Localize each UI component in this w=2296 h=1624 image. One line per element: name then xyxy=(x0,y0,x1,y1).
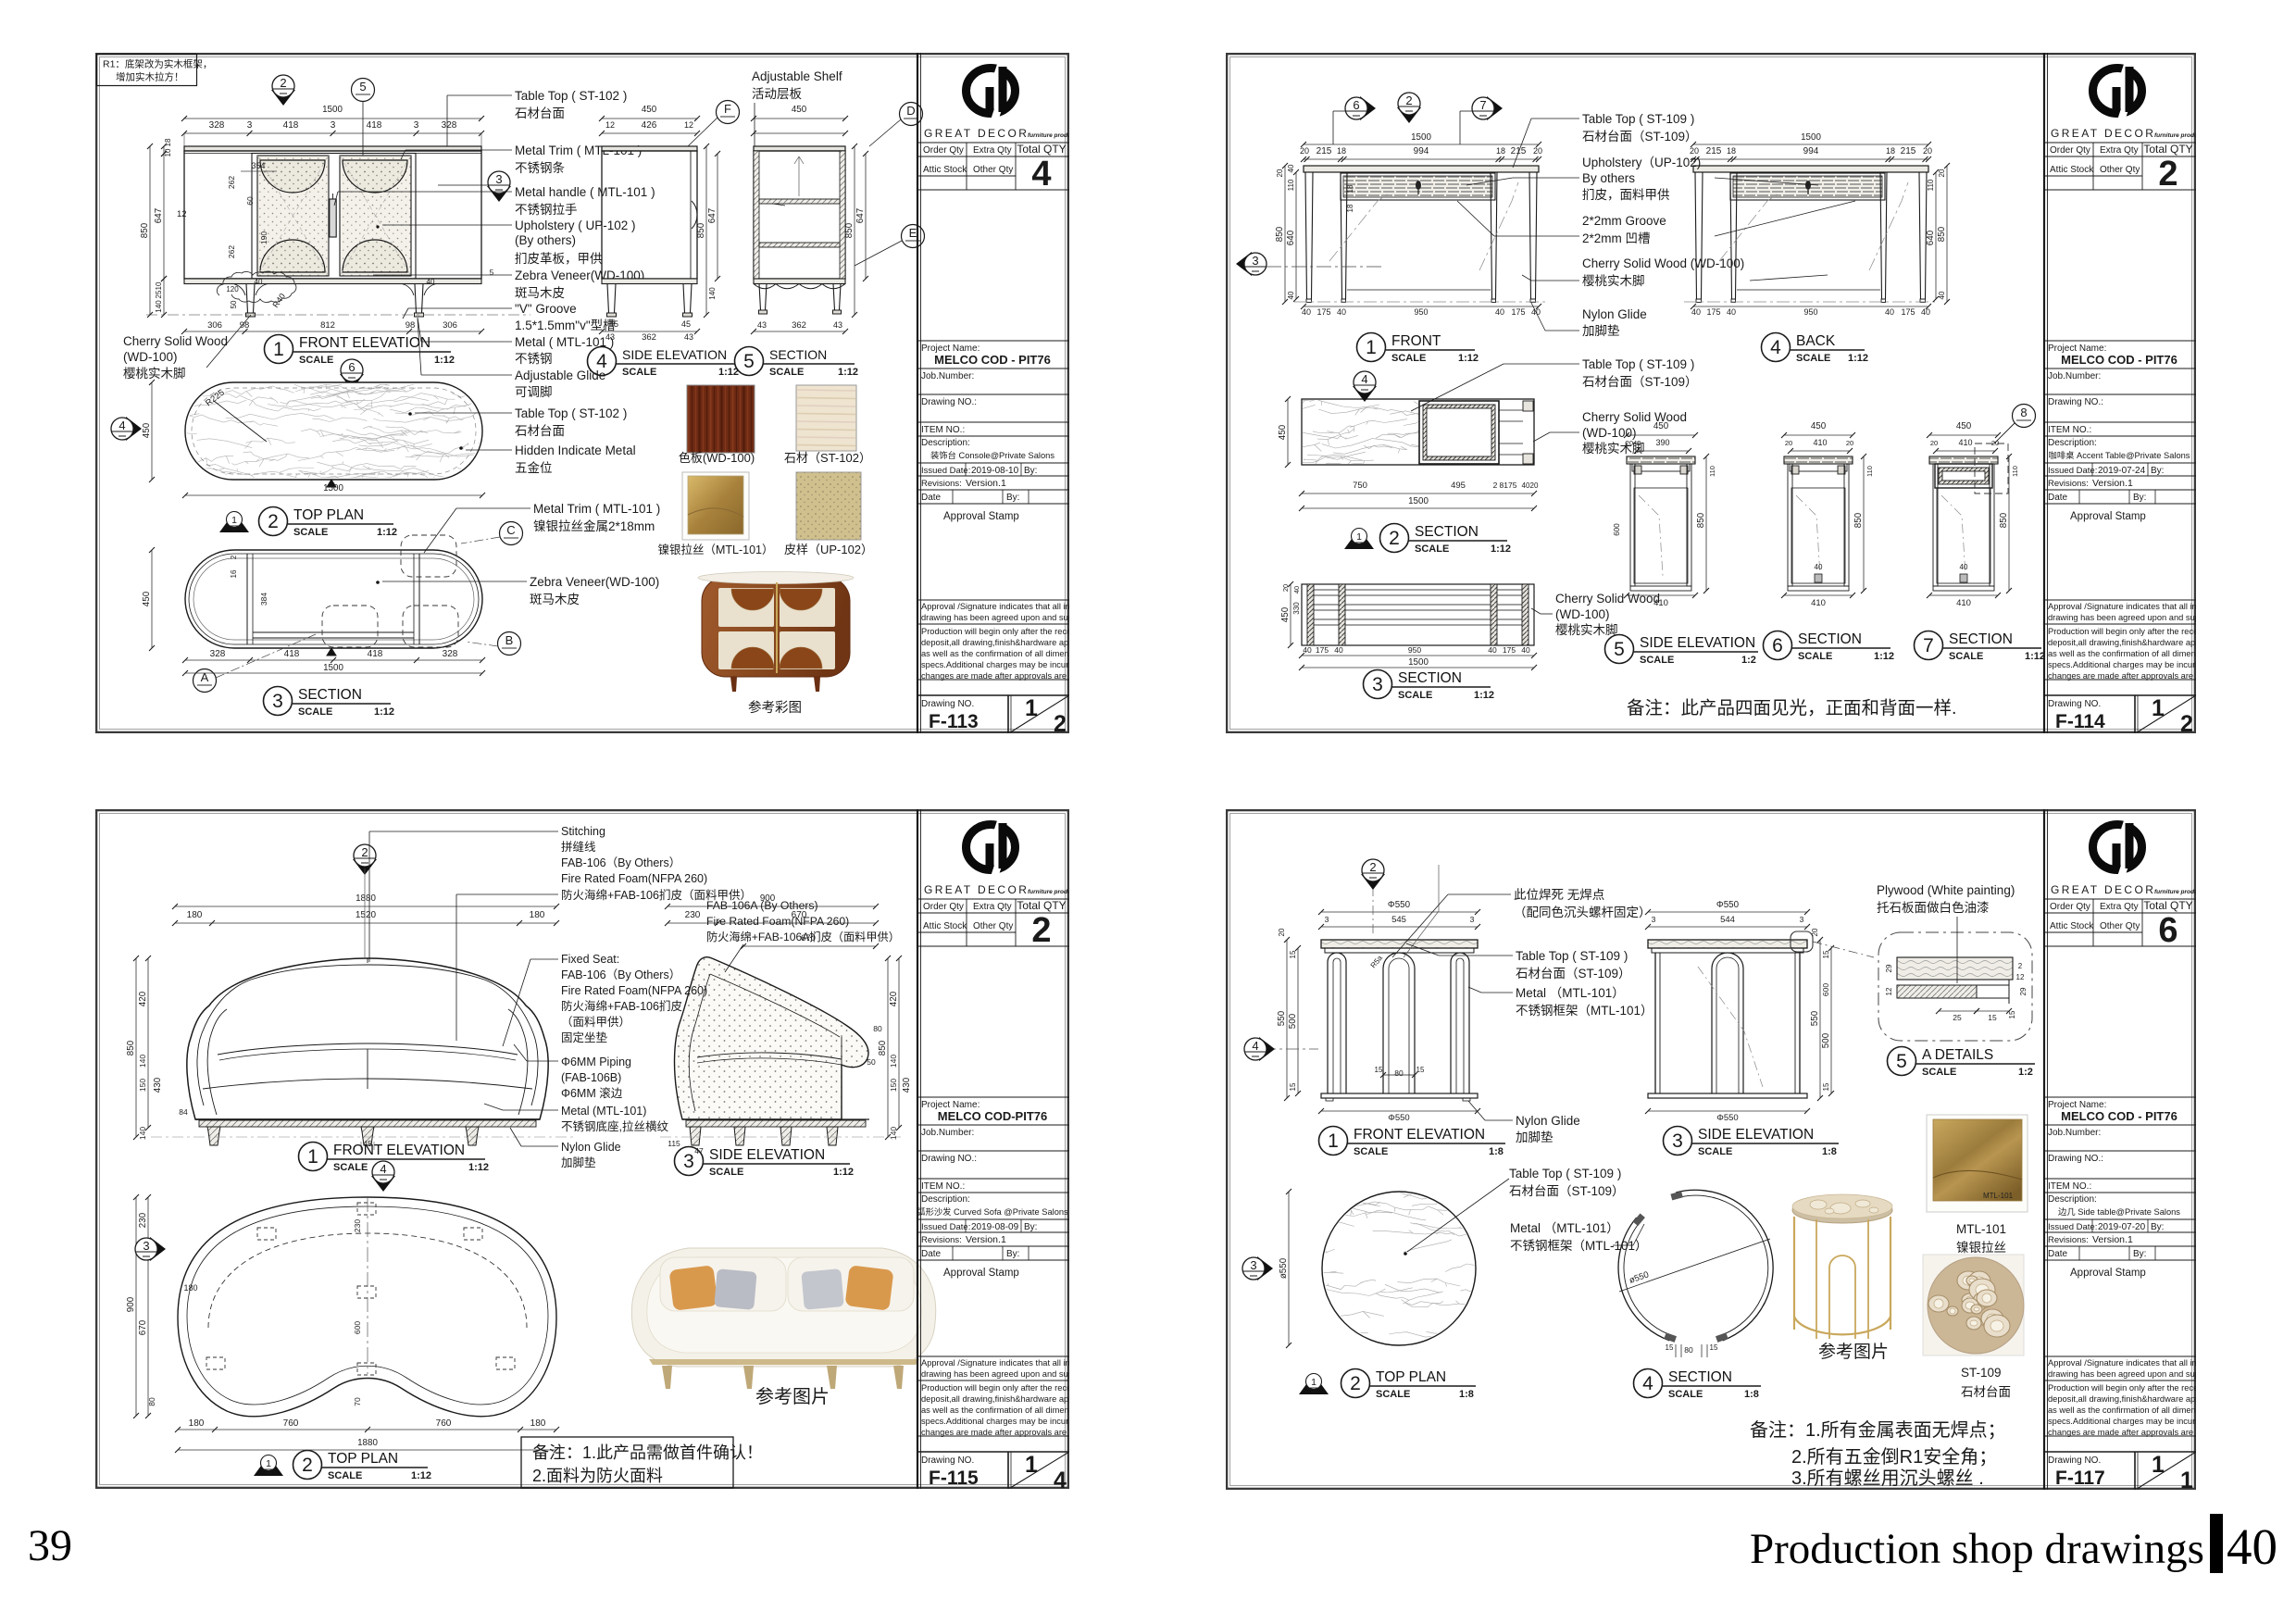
svg-text:樱桃实木脚: 樱桃实木脚 xyxy=(123,366,186,381)
svg-text:140: 140 xyxy=(889,1055,898,1068)
svg-text:110: 110 xyxy=(1865,466,1874,477)
svg-text:12: 12 xyxy=(1885,987,1893,995)
svg-text:1:12: 1:12 xyxy=(1848,353,1868,364)
svg-text:80: 80 xyxy=(873,1024,882,1033)
svg-text:Description:: Description: xyxy=(921,1194,970,1205)
svg-text:1: 1 xyxy=(231,515,237,526)
svg-text:SIDE ELEVATION: SIDE ELEVATION xyxy=(709,1147,825,1163)
svg-text:3: 3 xyxy=(414,120,419,131)
svg-text:By:: By: xyxy=(2151,1222,2164,1232)
svg-text:140: 140 xyxy=(138,1055,147,1068)
svg-text:Attic Stock: Attic Stock xyxy=(923,165,967,175)
svg-text:石材台面: 石材台面 xyxy=(515,424,565,438)
svg-text:1:12: 1:12 xyxy=(838,367,858,378)
svg-text:43: 43 xyxy=(605,332,615,342)
svg-text:110: 110 xyxy=(1287,179,1295,191)
svg-text:12: 12 xyxy=(177,209,187,219)
svg-text:(WD-100): (WD-100) xyxy=(1555,607,1610,621)
svg-text:A DETAILS: A DETAILS xyxy=(1922,1047,1993,1063)
svg-text:SCALE: SCALE xyxy=(622,367,656,378)
svg-text:1:12: 1:12 xyxy=(434,355,455,366)
svg-text:Issued Date:: Issued Date: xyxy=(921,466,970,476)
svg-text:拼缝线: 拼缝线 xyxy=(561,840,596,854)
svg-text:45: 45 xyxy=(681,319,691,329)
svg-text:1:12: 1:12 xyxy=(1474,690,1494,701)
svg-text:180: 180 xyxy=(189,1418,205,1429)
svg-text:SCALE: SCALE xyxy=(1922,1067,1956,1078)
svg-text:175: 175 xyxy=(1316,307,1330,317)
svg-text:328: 328 xyxy=(442,120,457,131)
svg-text:Other Qty: Other Qty xyxy=(973,165,1013,175)
svg-text:418: 418 xyxy=(284,649,300,659)
svg-text:450: 450 xyxy=(1956,421,1972,431)
svg-text:8: 8 xyxy=(2020,406,2027,419)
svg-text:3: 3 xyxy=(1470,915,1475,924)
svg-text:140: 140 xyxy=(708,287,717,300)
svg-text:15: 15 xyxy=(1375,1066,1383,1074)
svg-text:40: 40 xyxy=(1303,645,1312,655)
svg-text:弧形沙发 Curved Sofa @Private Salo: 弧形沙发 Curved Sofa @Private Salons xyxy=(917,1206,1068,1217)
svg-text:Fixed Seat:: Fixed Seat: xyxy=(561,953,619,966)
svg-text:175: 175 xyxy=(1511,307,1525,317)
svg-text:850: 850 xyxy=(140,222,150,238)
svg-text:FRONT ELEVATION: FRONT ELEVATION xyxy=(299,335,430,351)
svg-text:1:12: 1:12 xyxy=(468,1162,489,1173)
svg-text:SCALE: SCALE xyxy=(709,1167,743,1178)
svg-text:Issued Date:: Issued Date: xyxy=(2048,1222,2097,1232)
svg-text:不锈钢: 不锈钢 xyxy=(515,352,553,366)
svg-text:40: 40 xyxy=(1302,307,1311,317)
svg-text:Drawing NO.: Drawing NO. xyxy=(921,1455,974,1466)
svg-text:40: 40 xyxy=(1960,563,1968,571)
svg-text:Approval Stamp: Approval Stamp xyxy=(2070,1268,2146,1279)
svg-text:450: 450 xyxy=(1278,424,1288,440)
svg-text:SCALE: SCALE xyxy=(769,367,804,378)
svg-text:镍银拉丝金属2*18mm: 镍银拉丝金属2*18mm xyxy=(533,519,655,533)
svg-text:SCALE: SCALE xyxy=(299,355,333,366)
svg-text:不锈钢条: 不锈钢条 xyxy=(515,160,565,175)
svg-text:SIDE ELEVATION: SIDE ELEVATION xyxy=(1698,1127,1814,1143)
svg-text:Drawing NO.:: Drawing NO.: xyxy=(921,1154,977,1164)
svg-text:托石板面做白色油漆: 托石板面做白色油漆 xyxy=(1877,900,1990,915)
svg-text:SCALE: SCALE xyxy=(1640,655,1674,666)
svg-text:MTL-101: MTL-101 xyxy=(1983,1192,2014,1200)
svg-text:Approval Stamp: Approval Stamp xyxy=(943,1268,1019,1279)
svg-text:（面料甲供）: （面料甲供） xyxy=(561,1016,630,1029)
svg-text:Job.Number:: Job.Number: xyxy=(921,1128,974,1138)
svg-text:850: 850 xyxy=(878,1040,888,1056)
svg-text:Production will begin only aft: Production will begin only after the rec… xyxy=(921,1383,1069,1393)
svg-text:Nylon Glide: Nylon Glide xyxy=(1582,307,1647,321)
svg-text:ITEM NO.:: ITEM NO.: xyxy=(921,1181,965,1192)
svg-text:600: 600 xyxy=(1613,523,1621,536)
svg-text:5: 5 xyxy=(743,351,755,372)
svg-text:Other Qty: Other Qty xyxy=(2100,165,2140,175)
svg-text:Cherry Solid Wood (WD-100): Cherry Solid Wood (WD-100) xyxy=(1582,256,1744,270)
svg-text:drawing has been agreed upon a: drawing has been agreed upon and superse… xyxy=(2048,613,2196,622)
svg-text:1880: 1880 xyxy=(357,1438,378,1448)
svg-text:SCALE: SCALE xyxy=(298,706,332,718)
svg-text:Version.1: Version.1 xyxy=(2092,1234,2133,1245)
svg-text:备注：1.此产品需做首件确认！: 备注：1.此产品需做首件确认！ xyxy=(532,1443,763,1462)
svg-text:40: 40 xyxy=(1495,307,1504,317)
svg-text:15: 15 xyxy=(2008,1010,2016,1018)
svg-text:3: 3 xyxy=(331,120,336,131)
svg-text:18: 18 xyxy=(1496,146,1505,156)
svg-text:加脚垫: 加脚垫 xyxy=(1516,1131,1554,1144)
svg-text:石材台面（ST-109）: 石材台面（ST-109） xyxy=(1582,130,1698,144)
svg-text:2: 2 xyxy=(1054,711,1067,733)
svg-text:140: 140 xyxy=(138,1127,147,1140)
svg-text:600: 600 xyxy=(353,1321,362,1334)
svg-text:40: 40 xyxy=(1691,307,1701,317)
svg-text:2: 2 xyxy=(1493,481,1498,490)
svg-text:850: 850 xyxy=(844,222,855,238)
svg-text:By:: By: xyxy=(1006,1249,1019,1259)
svg-text:SCALE: SCALE xyxy=(1354,1146,1388,1157)
svg-text:防火海绵+FAB-106扪皮: 防火海绵+FAB-106扪皮 xyxy=(561,999,682,1013)
svg-text:SECTION: SECTION xyxy=(1668,1369,1732,1385)
svg-text:五金位: 五金位 xyxy=(515,461,553,475)
svg-text:850: 850 xyxy=(696,222,706,238)
svg-text:40: 40 xyxy=(1727,307,1736,317)
svg-text:1500: 1500 xyxy=(1411,132,1431,143)
svg-text:306: 306 xyxy=(443,320,457,331)
svg-text:MELCO COD - PIT76: MELCO COD - PIT76 xyxy=(934,353,1051,367)
svg-text:2: 2 xyxy=(1031,911,1051,950)
svg-text:Job.Number:: Job.Number: xyxy=(921,371,974,381)
svg-text:410: 410 xyxy=(1958,438,1972,447)
svg-text:12: 12 xyxy=(2016,973,2025,981)
svg-text:3: 3 xyxy=(1800,915,1804,924)
svg-text:410: 410 xyxy=(1813,438,1827,447)
svg-text:Φ6MM 滚边: Φ6MM 滚边 xyxy=(561,1086,623,1100)
svg-text:Table Top ( ST-109 ): Table Top ( ST-109 ) xyxy=(1582,357,1694,371)
svg-text:1520: 1520 xyxy=(356,910,377,920)
svg-text:SCALE: SCALE xyxy=(1398,690,1432,701)
svg-text:By others: By others xyxy=(1582,171,1635,185)
svg-text:20: 20 xyxy=(1690,146,1699,156)
svg-text:Production will begin only aft: Production will begin only after the rec… xyxy=(2048,1383,2196,1393)
svg-text:1:12: 1:12 xyxy=(1458,353,1479,364)
svg-text:Revisions:: Revisions: xyxy=(2048,479,2089,489)
svg-text:18: 18 xyxy=(1346,204,1354,212)
svg-text:50: 50 xyxy=(230,300,238,308)
svg-text:不锈钢底座,拉丝横纹: 不锈钢底座,拉丝横纹 xyxy=(561,1119,668,1133)
svg-text:1:12: 1:12 xyxy=(374,706,394,718)
svg-text:230: 230 xyxy=(685,910,701,920)
svg-text:40: 40 xyxy=(1921,307,1930,317)
svg-text:FAB-106（By Others）: FAB-106（By Others） xyxy=(561,856,680,869)
svg-text:3: 3 xyxy=(683,1151,694,1172)
svg-text:Date: Date xyxy=(2048,1249,2068,1259)
svg-text:40: 40 xyxy=(1938,291,1946,299)
svg-text:扪皮，面料甲供: 扪皮，面料甲供 xyxy=(1582,188,1670,202)
svg-text:306: 306 xyxy=(207,320,222,331)
svg-text:1:2: 1:2 xyxy=(1741,655,1756,666)
svg-text:SIDE ELEVATION: SIDE ELEVATION xyxy=(1640,635,1755,651)
svg-text:7: 7 xyxy=(1923,635,1934,656)
svg-text:TOP PLAN: TOP PLAN xyxy=(328,1451,398,1467)
svg-text:FAB-106A (By Others): FAB-106A (By Others) xyxy=(706,899,818,912)
svg-text:3: 3 xyxy=(1672,1131,1683,1152)
svg-text:TOP PLAN: TOP PLAN xyxy=(1376,1369,1446,1385)
svg-text:1:8: 1:8 xyxy=(1744,1389,1759,1400)
svg-text:边几 Side table@Private Salons: 边几 Side table@Private Salons xyxy=(2058,1207,2180,1217)
svg-text:420: 420 xyxy=(138,991,148,1006)
svg-text:MELCO COD-PIT76: MELCO COD-PIT76 xyxy=(938,1109,1047,1123)
svg-text:262: 262 xyxy=(227,245,236,258)
svg-text:18: 18 xyxy=(164,138,172,146)
svg-text:140: 140 xyxy=(889,1127,898,1140)
svg-text:MTL-101: MTL-101 xyxy=(1956,1222,2006,1236)
svg-text:10: 10 xyxy=(164,148,172,156)
svg-text:Extra Qty: Extra Qty xyxy=(973,145,1012,156)
svg-text:SCALE: SCALE xyxy=(1376,1389,1410,1400)
svg-text:1500: 1500 xyxy=(1801,132,1821,143)
svg-text:20: 20 xyxy=(1300,146,1309,156)
svg-text:Date: Date xyxy=(921,493,942,503)
svg-text:647: 647 xyxy=(154,208,164,223)
svg-text:20: 20 xyxy=(1785,439,1792,447)
svg-text:2: 2 xyxy=(361,845,368,859)
svg-text:石材台面（ST-109）: 石材台面（ST-109） xyxy=(1516,967,1631,981)
svg-text:Other Qty: Other Qty xyxy=(973,921,1013,931)
svg-text:樱桃实木脚: 樱桃实木脚 xyxy=(1582,273,1645,288)
svg-text:SCALE: SCALE xyxy=(1668,1389,1703,1400)
svg-text:FRONT ELEVATION: FRONT ELEVATION xyxy=(1354,1127,1485,1143)
svg-text:500: 500 xyxy=(1288,1013,1298,1029)
svg-text:Nylon Glide: Nylon Glide xyxy=(1516,1114,1580,1128)
svg-text:drawing has been agreed upon a: drawing has been agreed upon and superse… xyxy=(2048,1369,2196,1379)
svg-text:1:12: 1:12 xyxy=(411,1470,431,1481)
svg-text:BACK: BACK xyxy=(1796,333,1836,349)
svg-text:Zebra Veneer(WD-100): Zebra Veneer(WD-100) xyxy=(530,575,659,589)
svg-text:GREAT DECOR: GREAT DECOR xyxy=(924,127,1029,140)
svg-text:D: D xyxy=(906,104,915,118)
svg-text:5: 5 xyxy=(1614,639,1625,660)
svg-text:Drawing NO.: Drawing NO. xyxy=(921,699,974,709)
svg-text:550: 550 xyxy=(1277,1010,1287,1026)
svg-text:4: 4 xyxy=(1361,372,1367,386)
svg-text:2019-08-10: 2019-08-10 xyxy=(971,466,1019,476)
svg-text:994: 994 xyxy=(1414,146,1429,156)
svg-text:994: 994 xyxy=(1803,146,1819,156)
svg-text:as well as the confirmation of: as well as the confirmation of all dimen… xyxy=(921,649,1069,658)
svg-text:色板(WD-100): 色板(WD-100) xyxy=(679,451,755,465)
svg-text:参考图片: 参考图片 xyxy=(1818,1342,1889,1362)
svg-text:石材台面（ST-109）: 石材台面（ST-109） xyxy=(1509,1184,1625,1198)
svg-text:Revisions:: Revisions: xyxy=(2048,1235,2089,1245)
svg-text:F-117: F-117 xyxy=(2055,1468,2105,1489)
svg-text:20: 20 xyxy=(1533,146,1542,156)
svg-text:斑马木皮: 斑马木皮 xyxy=(530,593,580,606)
svg-text:40: 40 xyxy=(255,278,263,286)
svg-text:1:8: 1:8 xyxy=(1459,1389,1474,1400)
svg-text:F: F xyxy=(724,102,731,116)
svg-text:20: 20 xyxy=(1530,481,1539,490)
svg-text:deposit,all drawing,finish&har: deposit,all drawing,finish&hardware appr… xyxy=(2048,638,2196,647)
svg-text:40: 40 xyxy=(1885,307,1894,317)
svg-text:1:2: 1:2 xyxy=(2018,1067,2033,1078)
svg-text:2: 2 xyxy=(230,555,238,559)
svg-text:Order Qty: Order Qty xyxy=(2050,902,2090,912)
svg-text:Issued Date:: Issued Date: xyxy=(921,1222,970,1232)
svg-text:皮样（UP-102）: 皮样（UP-102） xyxy=(784,543,873,556)
svg-text:430: 430 xyxy=(902,1077,912,1093)
svg-text:115: 115 xyxy=(668,1139,680,1148)
svg-text:15: 15 xyxy=(1822,1082,1830,1091)
svg-text:Table Top ( ST-109 ): Table Top ( ST-109 ) xyxy=(1516,949,1628,963)
svg-text:2.面料为防火面料: 2.面料为防火面料 xyxy=(532,1467,663,1485)
svg-text:MELCO COD - PIT76: MELCO COD - PIT76 xyxy=(2061,353,2177,367)
svg-text:330: 330 xyxy=(1292,602,1301,615)
svg-text:1: 1 xyxy=(1311,1377,1316,1388)
svg-text:2: 2 xyxy=(1405,94,1412,107)
svg-text:Version.1: Version.1 xyxy=(966,478,1006,489)
svg-text:43: 43 xyxy=(833,320,842,330)
svg-text:80: 80 xyxy=(1684,1345,1693,1355)
svg-text:4: 4 xyxy=(1252,1039,1258,1053)
svg-text:550: 550 xyxy=(1810,1010,1820,1026)
svg-text:150: 150 xyxy=(138,1079,147,1092)
svg-text:850: 850 xyxy=(1937,226,1947,242)
svg-text:as well as the confirmation of: as well as the confirmation of all dimen… xyxy=(2048,1405,2196,1415)
svg-text:1500: 1500 xyxy=(322,105,343,115)
svg-text:15: 15 xyxy=(1666,1343,1674,1352)
svg-text:1: 1 xyxy=(1366,337,1377,358)
svg-text:544: 544 xyxy=(1720,915,1735,925)
svg-text:C: C xyxy=(506,523,515,537)
svg-text:450: 450 xyxy=(1653,421,1669,431)
svg-text:2*2mm Groove: 2*2mm Groove xyxy=(1582,214,1666,228)
svg-text:ITEM NO.:: ITEM NO.: xyxy=(2048,425,2091,435)
svg-text:4: 4 xyxy=(1642,1373,1653,1394)
svg-text:1: 1 xyxy=(2152,1452,2165,1478)
svg-text:deposit,all drawing,finish&har: deposit,all drawing,finish&hardware appr… xyxy=(2048,1394,2196,1404)
svg-text:Drawing NO.: Drawing NO. xyxy=(2048,1455,2101,1466)
svg-text:Attic Stock: Attic Stock xyxy=(2050,921,2094,931)
svg-text:By:: By: xyxy=(1024,1222,1037,1232)
svg-text:E: E xyxy=(909,226,917,240)
svg-text:Φ550: Φ550 xyxy=(1388,1113,1409,1123)
svg-text:40: 40 xyxy=(1815,563,1823,571)
svg-text:150: 150 xyxy=(889,1079,898,1092)
svg-text:80: 80 xyxy=(147,1397,156,1406)
svg-text:（配同色沉头螺杆固定）: （配同色沉头螺杆固定） xyxy=(1514,905,1652,919)
svg-text:850: 850 xyxy=(1999,512,2009,528)
svg-text:45: 45 xyxy=(609,319,618,329)
svg-text:增加实木拉方！: 增加实木拉方！ xyxy=(116,71,184,83)
svg-text:4: 4 xyxy=(1770,337,1781,358)
svg-text:Drawing NO.:: Drawing NO.: xyxy=(2048,397,2103,407)
svg-text:180: 180 xyxy=(530,910,545,920)
svg-text:40: 40 xyxy=(1488,645,1497,655)
svg-text:410: 410 xyxy=(1653,598,1668,608)
svg-text:2: 2 xyxy=(2180,711,2193,733)
svg-text:84: 84 xyxy=(179,1107,188,1117)
svg-text:50: 50 xyxy=(867,1057,876,1067)
svg-text:Fire Rated Foam(NFPA 260): Fire Rated Foam(NFPA 260) xyxy=(706,915,849,928)
svg-text:1500: 1500 xyxy=(1408,657,1429,668)
svg-text:20: 20 xyxy=(1276,169,1284,177)
svg-text:20: 20 xyxy=(1923,146,1932,156)
svg-text:参考图片: 参考图片 xyxy=(755,1386,830,1407)
svg-text:5: 5 xyxy=(1896,1051,1907,1072)
svg-text:2019-07-24: 2019-07-24 xyxy=(2098,466,2146,476)
svg-text:430: 430 xyxy=(153,1077,163,1093)
svg-text:Φ6MM Piping: Φ6MM Piping xyxy=(561,1056,631,1068)
svg-text:R5a: R5a xyxy=(1369,954,1385,969)
svg-text:1.5*1.5mm"v"型槽: 1.5*1.5mm"v"型槽 xyxy=(515,319,616,332)
svg-text:12: 12 xyxy=(684,120,693,130)
svg-text:不锈钢框架（MTL-101）: 不锈钢框架（MTL-101） xyxy=(1516,1004,1653,1018)
svg-text:43: 43 xyxy=(757,320,767,330)
svg-text:可调脚: 可调脚 xyxy=(515,385,553,399)
svg-text:B: B xyxy=(505,633,514,647)
svg-text:Φ550: Φ550 xyxy=(1716,900,1740,910)
svg-text:SCALE: SCALE xyxy=(1796,353,1830,364)
svg-text:180: 180 xyxy=(530,1418,546,1429)
svg-text:950: 950 xyxy=(1408,645,1421,655)
svg-text:changes are made after approva: changes are made after approvals are rec… xyxy=(2048,1428,2196,1437)
svg-text:By:: By: xyxy=(1006,493,1019,503)
svg-text:Total QTY: Total QTY xyxy=(1017,143,1066,156)
svg-text:Description:: Description: xyxy=(2048,1194,2097,1205)
svg-text:25: 25 xyxy=(155,290,163,298)
svg-text:6: 6 xyxy=(1353,98,1359,112)
svg-text:230: 230 xyxy=(353,1219,362,1232)
svg-text:Fire Rated Foam(NFPA 260): Fire Rated Foam(NFPA 260) xyxy=(561,984,707,997)
svg-text:4: 4 xyxy=(1031,155,1051,194)
svg-text:Approval /Signature indicates: Approval /Signature indicates that all i… xyxy=(2048,1358,2196,1368)
svg-text:140: 140 xyxy=(155,300,163,313)
svg-text:6: 6 xyxy=(1772,635,1783,656)
svg-text:MELCO COD - PIT76: MELCO COD - PIT76 xyxy=(2061,1109,2177,1123)
svg-text:850: 850 xyxy=(1853,512,1864,528)
svg-text:2: 2 xyxy=(1350,1373,1361,1394)
svg-text:furniture production: furniture production xyxy=(2154,132,2196,139)
svg-text:16: 16 xyxy=(230,569,238,578)
svg-text:Hidden Indicate Metal: Hidden Indicate Metal xyxy=(515,443,636,457)
svg-text:3: 3 xyxy=(247,120,253,131)
svg-text:Upholstery（UP-102): Upholstery（UP-102) xyxy=(1582,156,1701,169)
svg-text:450: 450 xyxy=(142,591,152,606)
svg-text:Other Qty: Other Qty xyxy=(2100,921,2140,931)
svg-text:215: 215 xyxy=(1901,146,1916,156)
svg-text:Revisions:: Revisions: xyxy=(921,479,962,489)
svg-text:Job.Number:: Job.Number: xyxy=(2048,371,2101,381)
svg-text:Fire Rated Foam(NFPA 260): Fire Rated Foam(NFPA 260) xyxy=(561,872,707,885)
svg-text:328: 328 xyxy=(209,120,225,131)
svg-text:此位焊死 无焊点: 此位焊死 无焊点 xyxy=(1514,888,1604,902)
svg-text:as well as the confirmation of: as well as the confirmation of all dimen… xyxy=(2048,649,2196,658)
svg-text:Metal handle ( MTL-101 ): Metal handle ( MTL-101 ) xyxy=(515,185,655,199)
svg-text:40: 40 xyxy=(1287,164,1295,172)
svg-text:Total QTY: Total QTY xyxy=(2143,143,2192,156)
svg-text:230: 230 xyxy=(138,1212,148,1228)
svg-text:1:8: 1:8 xyxy=(1489,1146,1504,1157)
svg-text:20: 20 xyxy=(1846,439,1853,447)
svg-text:FAB-106（By Others）: FAB-106（By Others） xyxy=(561,968,680,981)
svg-text:Cherry Solid Wood: Cherry Solid Wood xyxy=(1555,592,1660,606)
svg-text:29: 29 xyxy=(1885,964,1893,972)
svg-text:Metal Trim ( MTL-101 ): Metal Trim ( MTL-101 ) xyxy=(533,502,660,516)
svg-text:450: 450 xyxy=(792,105,807,115)
svg-text:60: 60 xyxy=(245,196,255,206)
svg-text:Total QTY: Total QTY xyxy=(1017,899,1066,912)
svg-text:3: 3 xyxy=(1652,915,1656,924)
